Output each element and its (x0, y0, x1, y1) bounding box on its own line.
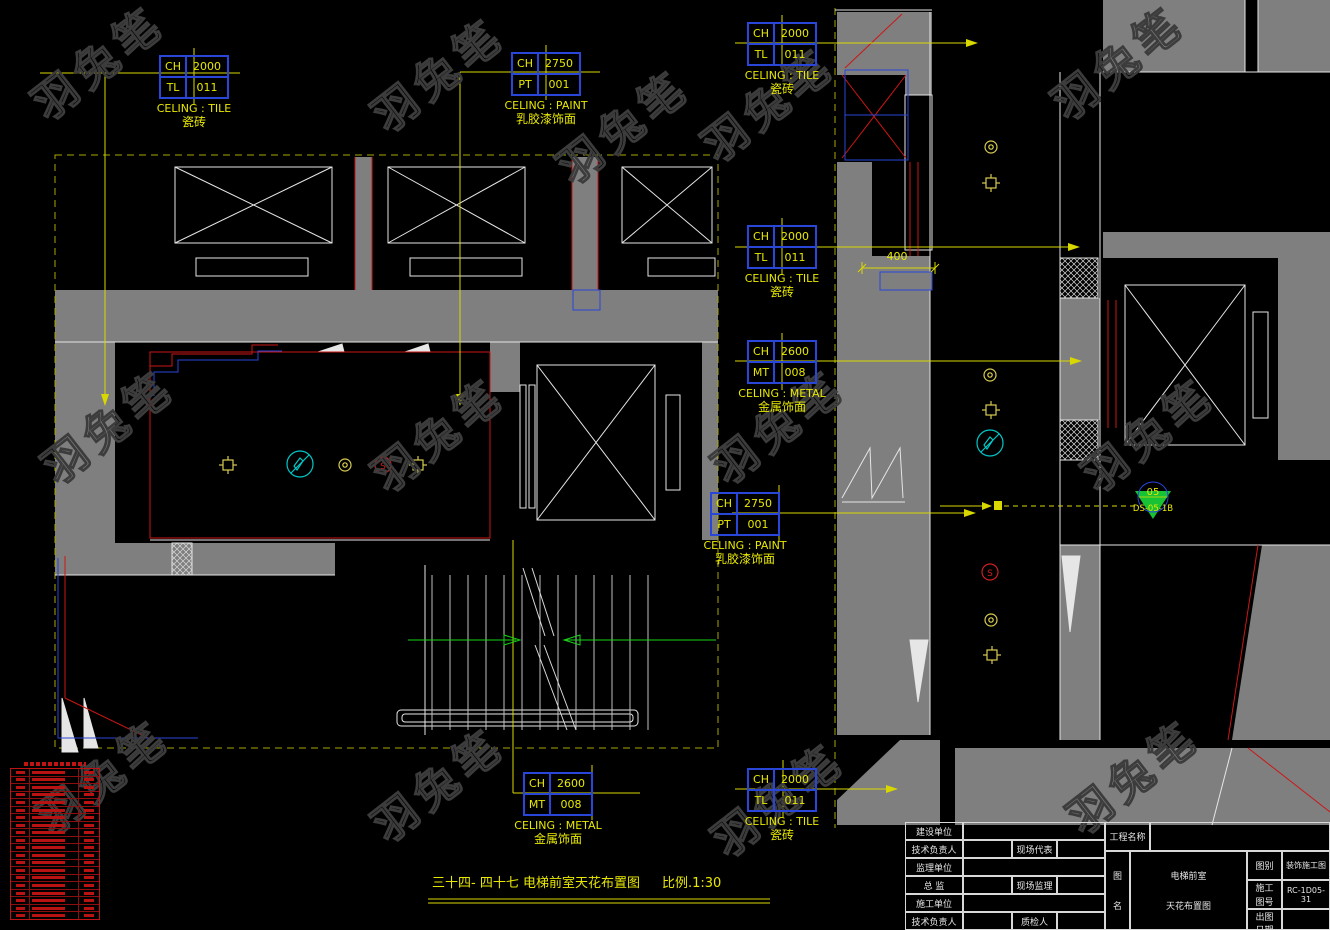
finish-caption-en: CELING : METAL (738, 387, 825, 400)
finish-caption-en: CELING : TILE (157, 102, 232, 115)
finish-tag-tile-right-2: CH2000 TL011 CELING : TILE 瓷砖 (712, 225, 852, 299)
legend-symbol (11, 807, 30, 814)
legend-value (78, 844, 99, 851)
legend-symbol (11, 799, 30, 806)
tb-blank (963, 822, 1105, 840)
leader-arrowheads (101, 39, 1082, 793)
finish-caption-cn: 乳胶漆饰面 (715, 552, 775, 566)
legend-label (30, 771, 78, 774)
tb-figure-label: 图 名 (1105, 851, 1130, 930)
legend-symbol (11, 860, 30, 867)
legend-label (30, 892, 78, 895)
elevator-shaft (175, 167, 332, 243)
tb-field-label: 图别 (1247, 851, 1282, 880)
finish-tag-box: CH2750 PT001 (511, 52, 581, 96)
section-sheet: DS-05-1B (1133, 504, 1173, 514)
legend-table (10, 762, 100, 922)
legend-row (11, 890, 99, 898)
tb-field-label: 施工 图号 (1247, 880, 1282, 909)
legend-label (30, 876, 78, 879)
elevator-shaft (537, 365, 655, 520)
legend-label (30, 839, 78, 842)
legend-row (11, 784, 99, 792)
finish-caption-en: CELING : PAINT (504, 99, 587, 112)
drawing-title: 三十四- 四十七 电梯前室天花布置图比例.1:30 (432, 872, 721, 891)
legend-row (11, 867, 99, 875)
finish-tag-box: CH2000 TL011 (159, 55, 229, 99)
tb-field-value (1282, 909, 1330, 930)
legend-symbol (11, 784, 30, 791)
legend-value (78, 829, 99, 836)
legend-symbol (11, 905, 30, 912)
tb-project-value (1150, 822, 1330, 851)
legend-symbol (11, 890, 30, 897)
cad-drawing-canvas: 400 05 DS-05-1B S S (0, 0, 1330, 930)
tb-project-label: 工程名称 (1105, 822, 1150, 851)
legend-label (30, 861, 78, 864)
legend-row (11, 807, 99, 815)
finish-caption-en: CELING : METAL (514, 819, 601, 832)
legend-symbol (11, 852, 30, 859)
finish-tag-box: CH2000 TL011 (747, 22, 817, 66)
svg-text:S: S (987, 569, 993, 579)
tb-blank (1057, 840, 1105, 858)
legend-value (78, 905, 99, 912)
tb-label: 现场代表 (1012, 840, 1057, 858)
legend-row (11, 852, 99, 860)
finish-caption-en: CELING : TILE (745, 272, 820, 285)
finish-tag-metal-bottom: CH2600 MT008 CELING : METAL 金属饰面 (488, 772, 628, 846)
red-linework (65, 14, 1330, 812)
finish-tag-box: CH2000 TL011 (747, 768, 817, 812)
finish-caption-cn: 乳胶漆饰面 (516, 112, 576, 126)
legend-label (30, 786, 78, 789)
tb-label: 现场监理 (1012, 876, 1057, 894)
legend-row (11, 769, 99, 777)
tb-field-label: 出图 日期 (1247, 909, 1282, 930)
finish-caption-en: CELING : PAINT (703, 539, 786, 552)
legend-symbol (11, 867, 30, 874)
legend-value (78, 777, 99, 784)
finish-tag-box: CH2750 PT001 (710, 492, 780, 536)
tb-blank (963, 858, 1105, 876)
finish-caption-en: CELING : TILE (745, 69, 820, 82)
svg-text:S: S (380, 462, 386, 472)
legend-title (24, 762, 86, 766)
legend-label (30, 778, 78, 781)
legend-value (78, 837, 99, 844)
tb-label: 监理单位 (905, 858, 963, 876)
finish-tag-paint-top: CH2750 PT001 CELING : PAINT 乳胶漆饰面 (476, 52, 616, 126)
legend-label (30, 884, 78, 887)
legend-row (11, 860, 99, 868)
tb-blank (1057, 876, 1105, 894)
legend-label (30, 816, 78, 819)
legend-symbol (11, 844, 30, 851)
legend-row (11, 814, 99, 822)
leader-lines (40, 15, 1136, 820)
legend-value (78, 860, 99, 867)
finish-caption-cn: 金属饰面 (534, 832, 582, 846)
legend-value (78, 882, 99, 889)
dimension-400: 400 (887, 250, 908, 263)
legend-value (78, 875, 99, 882)
legend-symbol (11, 814, 30, 821)
tb-blank (1057, 912, 1105, 930)
drawing-scale: 比例.1:30 (662, 876, 721, 891)
legend-value (78, 822, 99, 829)
finish-caption-cn: 瓷砖 (770, 285, 794, 299)
legend-label (30, 809, 78, 812)
legend-symbol (11, 837, 30, 844)
tb-blank (963, 894, 1105, 912)
legend-value (78, 807, 99, 814)
finish-tag-tile-right-1: CH2000 TL011 CELING : TILE 瓷砖 (712, 22, 852, 96)
legend-value (78, 867, 99, 874)
legend-value (78, 890, 99, 897)
tb-blank (963, 840, 1012, 858)
legend-value (78, 784, 99, 791)
legend-value (78, 799, 99, 806)
legend-label (30, 899, 78, 902)
legend-value (78, 792, 99, 799)
legend-label (30, 907, 78, 910)
drawing-linework: 400 05 DS-05-1B S S (0, 0, 1330, 930)
finish-tag-box: CH2600 MT008 (523, 772, 593, 816)
tb-label: 技术负责人 (905, 912, 963, 930)
legend-symbol (11, 792, 30, 799)
section-number: 05 (1147, 487, 1160, 498)
stair-treads (432, 568, 648, 730)
legend-label (30, 793, 78, 796)
legend-row (11, 822, 99, 830)
plan-borders (55, 8, 835, 828)
finish-tag-tile-top-left: CH2000 TL011 CELING : TILE 瓷砖 (124, 55, 264, 129)
legend-value (78, 897, 99, 904)
legend-label (30, 854, 78, 857)
elevator-shaft (1125, 285, 1245, 445)
title-block: 建设单位 技术负责人 现场代表 监理单位 总 监 现场监理 施工单位 技术负责人… (905, 822, 1330, 930)
tb-blank (963, 876, 1012, 894)
legend-symbol (11, 897, 30, 904)
legend-symbol (11, 777, 30, 784)
legend-row (11, 882, 99, 890)
tb-label: 技术负责人 (905, 840, 963, 858)
legend-symbol (11, 829, 30, 836)
legend-row (11, 777, 99, 785)
legend-row (11, 844, 99, 852)
finish-tag-tile-bottom-right: CH2000 TL011 CELING : TILE 瓷砖 (712, 768, 852, 842)
finish-caption-en: CELING : TILE (745, 815, 820, 828)
legend-value (78, 814, 99, 821)
legend-symbol (11, 875, 30, 882)
legend-row (11, 912, 99, 919)
finish-caption-cn: 金属饰面 (758, 400, 806, 414)
legend-row (11, 875, 99, 883)
finish-caption-cn: 瓷砖 (770, 828, 794, 842)
legend-symbol (11, 769, 30, 776)
stair-direction-arrows (408, 635, 716, 645)
finish-tag-paint-right: CH2750 PT001 CELING : PAINT 乳胶漆饰面 (675, 492, 815, 566)
elevator-shaft (622, 167, 712, 243)
legend-value (78, 912, 99, 919)
legend-label (30, 846, 78, 849)
stair-handrail (397, 710, 638, 726)
tb-label: 施工单位 (905, 894, 963, 912)
tb-blank (963, 912, 1012, 930)
section-marker: 05 DS-05-1B (1133, 482, 1173, 519)
finish-caption-cn: 瓷砖 (770, 82, 794, 96)
finish-tag-box: CH2600 MT008 (747, 340, 817, 384)
drawing-title-text: 三十四- 四十七 电梯前室天花布置图 (432, 876, 640, 891)
legend-label (30, 824, 78, 827)
finish-tag-metal-right: CH2600 MT008 CELING : METAL 金属饰面 (712, 340, 852, 414)
tb-field-value: 装饰施工图 (1282, 851, 1330, 880)
finish-caption-cn: 瓷砖 (182, 115, 206, 129)
elevator-shaft (388, 167, 525, 243)
legend-row (11, 829, 99, 837)
legend-symbol (11, 882, 30, 889)
legend-label (30, 869, 78, 872)
legend-row (11, 905, 99, 913)
tb-label: 建设单位 (905, 822, 963, 840)
tb-field-value: RC-1D05-31 (1282, 880, 1330, 909)
legend-value (78, 769, 99, 776)
legend-label (30, 831, 78, 834)
finish-tag-box: CH2000 TL011 (747, 225, 817, 269)
tb-label: 质检人 (1012, 912, 1057, 930)
tb-label: 总 监 (905, 876, 963, 894)
legend-row (11, 897, 99, 905)
legend-row (11, 792, 99, 800)
legend-symbol (11, 822, 30, 829)
legend-label (30, 914, 78, 917)
legend-rows (10, 768, 100, 920)
legend-symbol (11, 912, 30, 919)
legend-row (11, 837, 99, 845)
title-underline (428, 899, 770, 903)
legend-row (11, 799, 99, 807)
legend-label (30, 801, 78, 804)
tb-figure-name: 电梯前室 天花布置图 (1130, 851, 1247, 930)
legend-value (78, 852, 99, 859)
